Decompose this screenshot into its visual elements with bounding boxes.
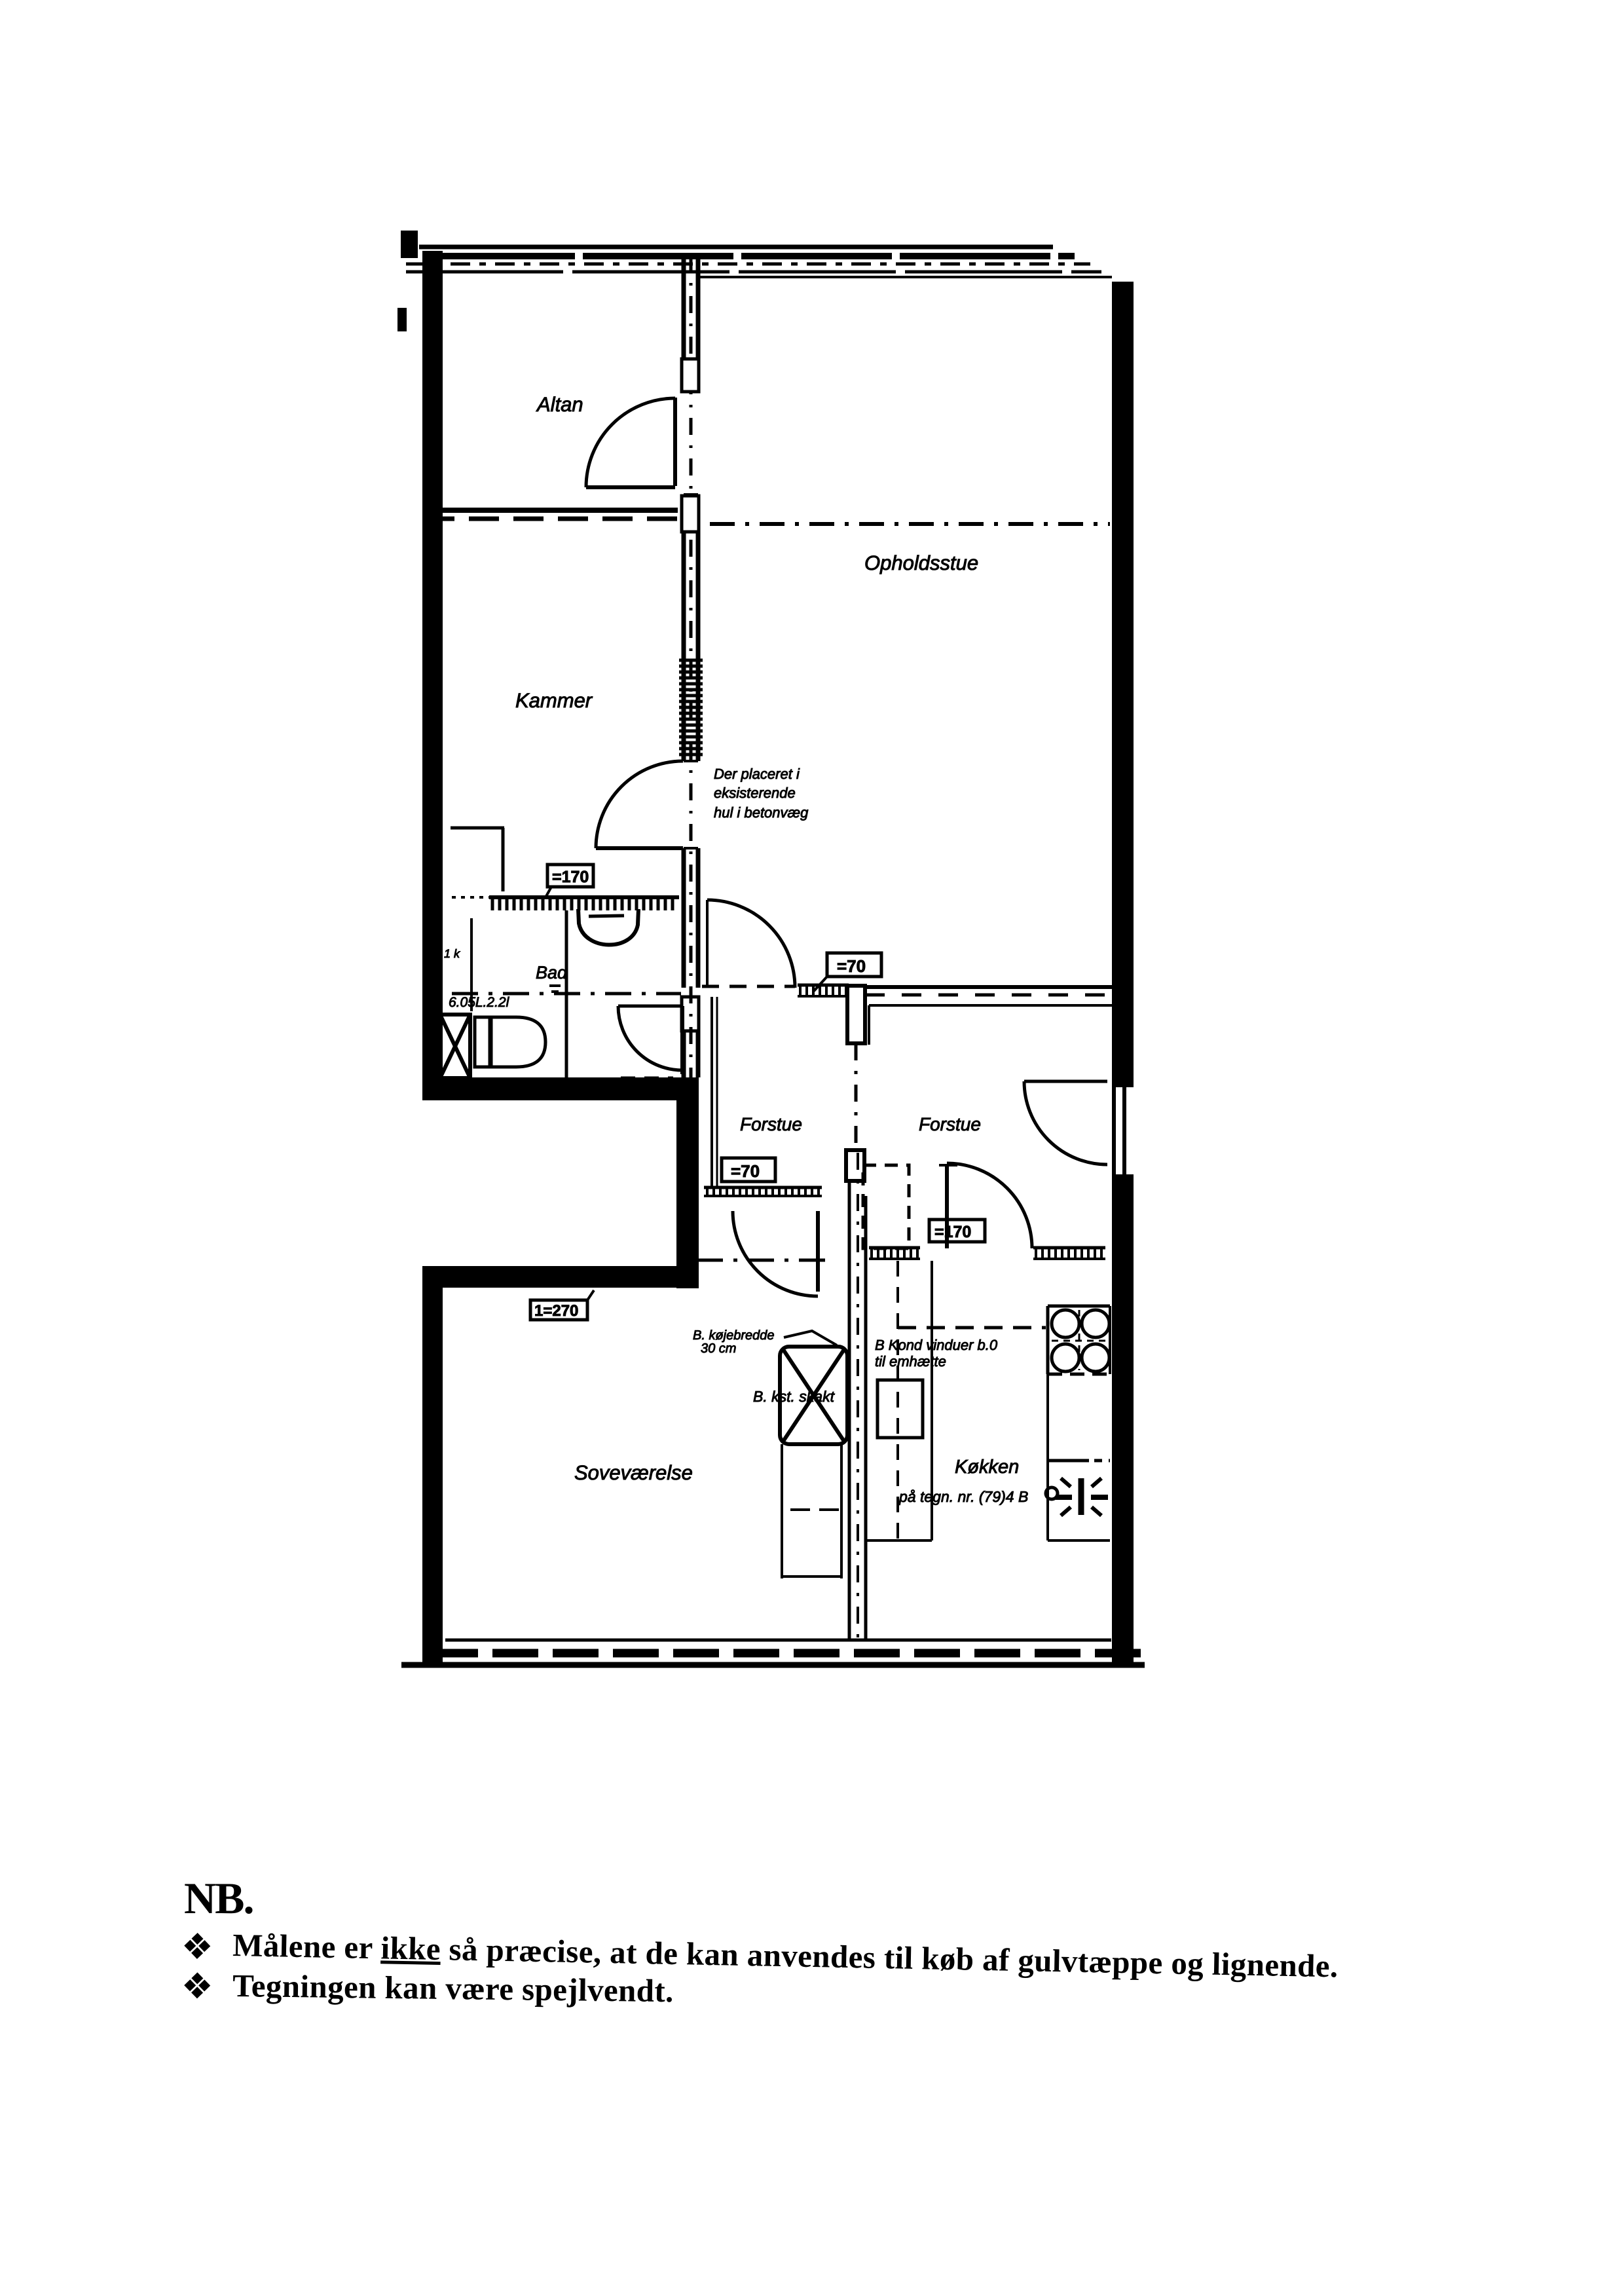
svg-text:=70: =70 [837,956,866,976]
svg-text:til emhætte: til emhætte [875,1353,946,1370]
svg-text:NB.: NB. [184,1873,253,1923]
svg-text:30 cm: 30 cm [701,1341,736,1356]
svg-text:B. kst. skakt: B. kst. skakt [753,1388,836,1405]
svg-text:Der placeret i: Der placeret i [714,766,800,782]
svg-text:Tegningen kan være spejlvendt.: Tegningen kan være spejlvendt. [232,1968,674,2009]
svg-text:6.05L.2.2l: 6.05L.2.2l [449,995,510,1010]
svg-text:Forstue: Forstue [740,1114,802,1134]
svg-text:hul i betonvæg: hul i betonvæg [714,804,809,821]
svg-text:Soveværelse: Soveværelse [574,1461,693,1484]
svg-text:Opholdsstue: Opholdsstue [864,551,978,574]
svg-text:=70: =70 [731,1161,760,1181]
svg-text:Køkken: Køkken [955,1457,1019,1478]
svg-text:Kammer: Kammer [515,689,593,712]
svg-text:1 k: 1 k [444,947,460,960]
svg-text:=170: =170 [934,1223,971,1241]
svg-text:B. køjebredde: B. køjebredde [693,1328,775,1343]
svg-text:Bad: Bad [536,963,568,982]
svg-text:1=270: 1=270 [534,1302,578,1320]
svg-text:på tegn. nr. (79)4 B: på tegn. nr. (79)4 B [898,1488,1028,1505]
svg-text:Forstue: Forstue [919,1114,981,1134]
svg-text:eksisterende: eksisterende [714,785,796,801]
svg-text:=170: =170 [552,868,589,886]
svg-text:B Kond vinduer b.0: B Kond vinduer b.0 [875,1337,998,1353]
svg-text:Altan: Altan [536,393,583,416]
